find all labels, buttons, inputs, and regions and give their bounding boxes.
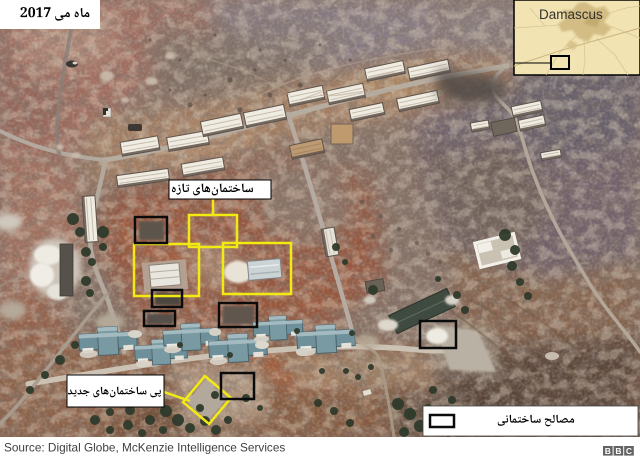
svg-text:Damascus: Damascus — [539, 7, 603, 22]
svg-text:C: C — [626, 446, 632, 456]
svg-text:B: B — [605, 446, 611, 456]
svg-text:B: B — [615, 446, 621, 456]
svg-text:Source: Digital Globe, McKenzi: Source: Digital Globe, McKenzie Intellig… — [4, 441, 285, 455]
